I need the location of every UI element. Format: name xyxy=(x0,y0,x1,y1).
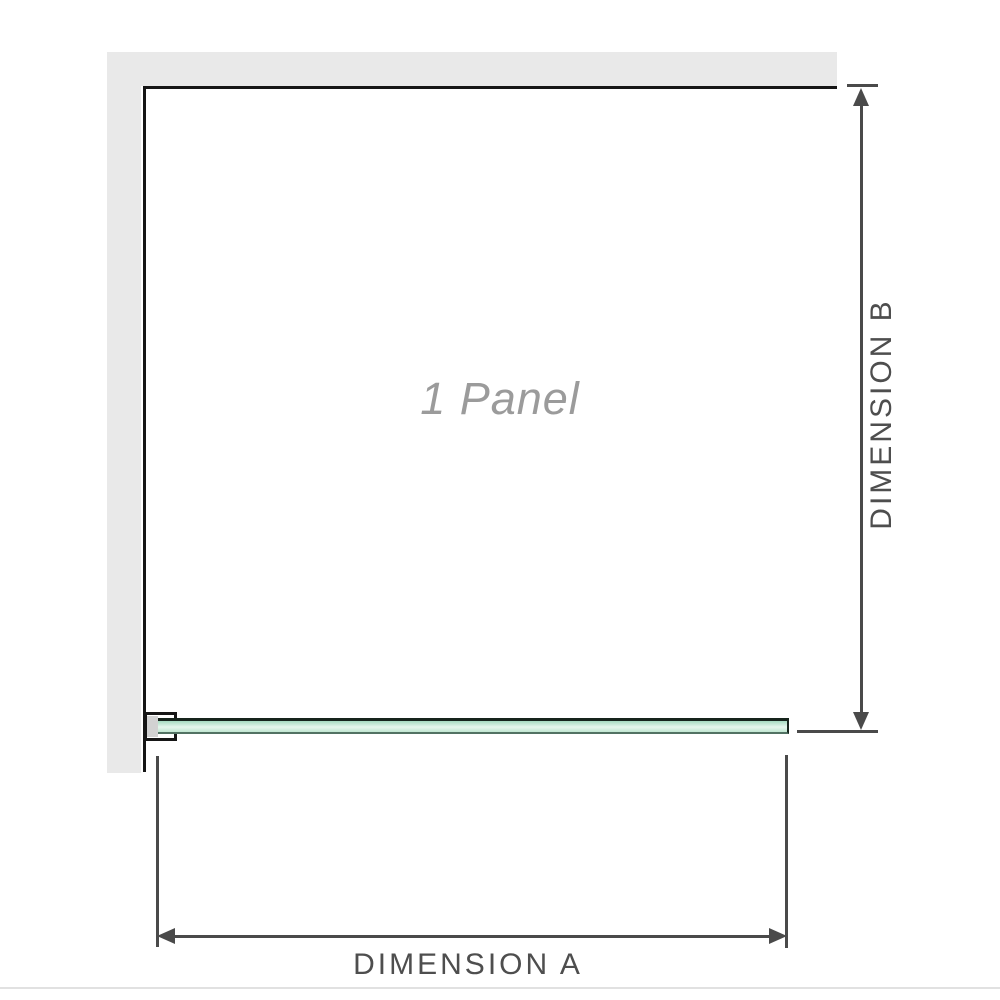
dimension-a-line xyxy=(162,935,780,938)
arrow-right-icon xyxy=(769,928,787,944)
wall-left xyxy=(107,52,141,773)
shower-panel-diagram: 1 Panel DIMENSION B DIMENSION A xyxy=(0,0,1000,1000)
dimension-a-label: DIMENSION A xyxy=(268,948,668,982)
dimension-b-bottom-extension-line xyxy=(797,730,878,733)
panel-outline-left-edge xyxy=(143,86,146,772)
panel-count-label: 1 Panel xyxy=(350,368,650,430)
page-separator xyxy=(0,987,1000,989)
wall-bracket-pad xyxy=(147,716,158,737)
wall-top xyxy=(107,52,837,86)
arrow-up-icon xyxy=(853,88,869,106)
dimension-a-left-extension-line xyxy=(156,756,159,947)
dimension-b-line xyxy=(860,96,863,718)
arrow-left-icon xyxy=(157,928,175,944)
dimension-a-right-extension-line xyxy=(785,755,788,948)
dimension-b-top-tick xyxy=(847,84,878,87)
arrow-down-icon xyxy=(853,712,869,730)
glass-panel xyxy=(155,718,789,734)
panel-outline-top-edge xyxy=(143,86,837,89)
dimension-b-label: DIMENSION B xyxy=(866,284,898,544)
